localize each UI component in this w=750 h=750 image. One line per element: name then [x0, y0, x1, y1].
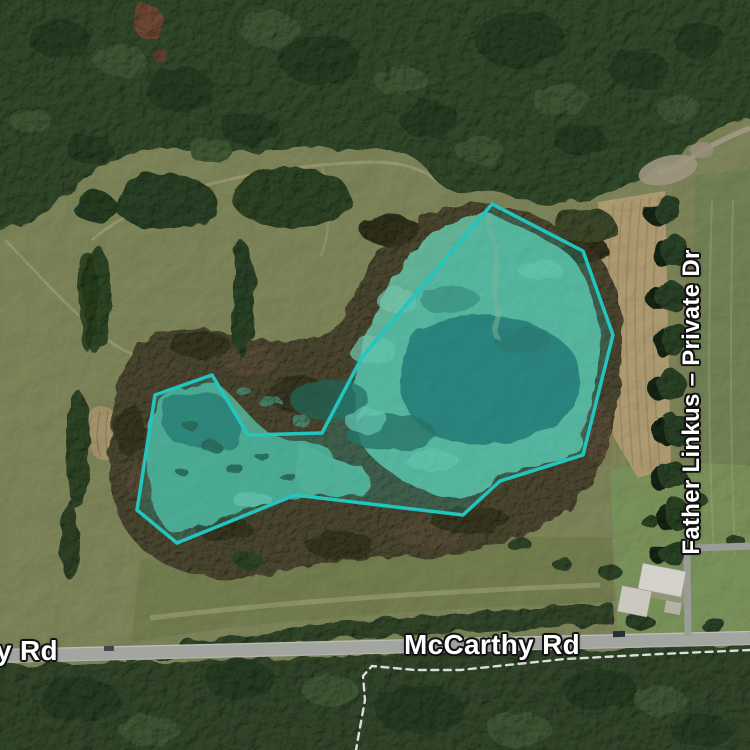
road-label-private-drive: Father Linkus – Private Dr	[678, 249, 706, 554]
photo-grain	[0, 0, 750, 750]
map-viewport[interactable]: McCarthy Rd y Rd Father Linkus – Private…	[0, 0, 750, 750]
satellite-imagery	[0, 0, 750, 750]
road-label-mccarthy: McCarthy Rd	[404, 629, 580, 661]
road-label-left-partial: y Rd	[0, 635, 58, 667]
